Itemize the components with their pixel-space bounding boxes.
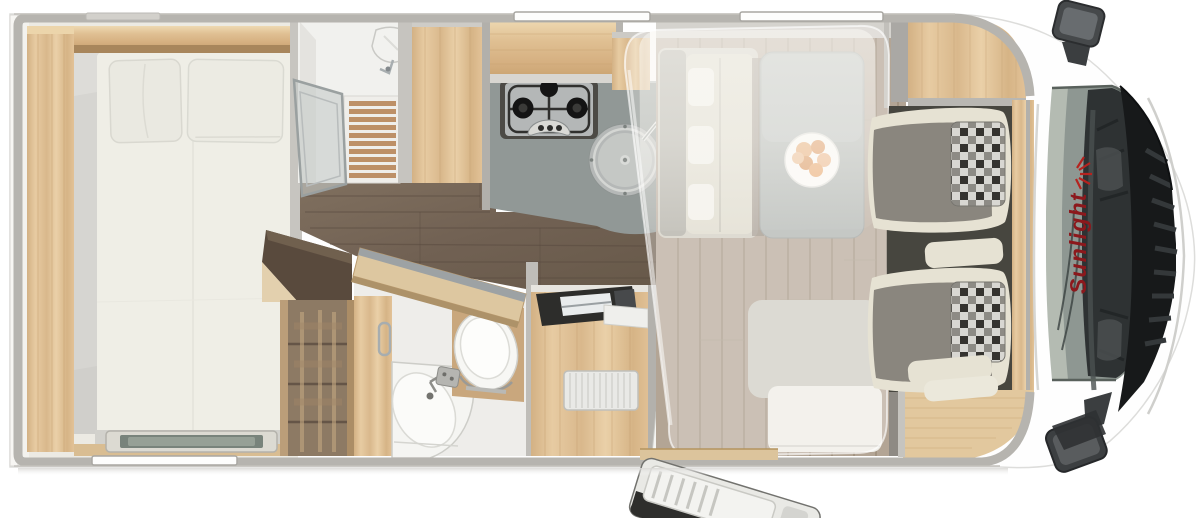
svg-text:Sunlight: Sunlight (1065, 192, 1091, 294)
